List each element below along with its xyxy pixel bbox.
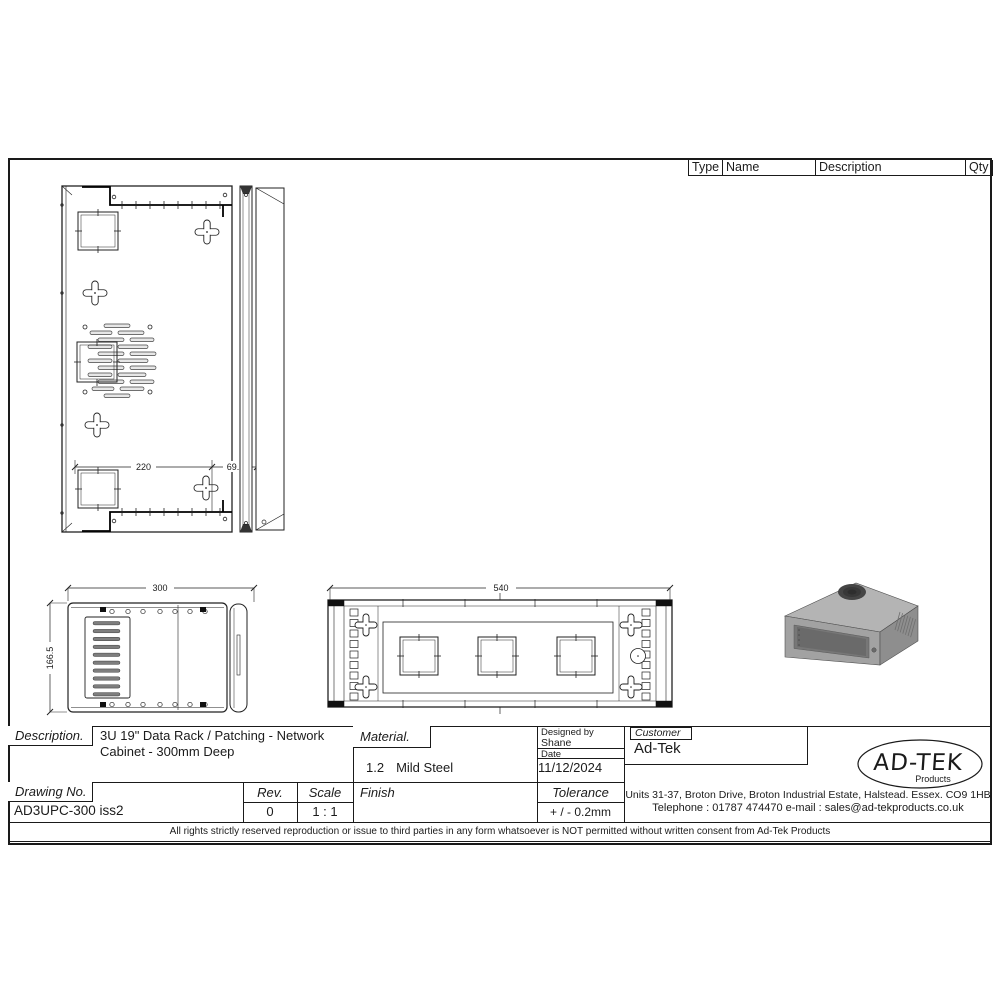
side-door-profile [230,604,247,712]
view-top-flat-pattern: 220 69.5 [52,180,292,540]
iso-fan-vent [838,584,866,600]
tolerance-value: + / - 0.2mm [537,805,624,819]
drawing-no-value: AD3UPC-300 iss2 [14,803,124,818]
finish-label: Finish [360,785,395,800]
company-address: Units 31-37, Broton Drive, Broton Indust… [624,789,992,815]
square-cutout-top [75,209,121,253]
scale-value: 1 : 1 [297,804,353,819]
drawing-no-label: Drawing No. [8,782,93,802]
dim-label-540: 540 [493,583,508,593]
view-side: 300 166.5 [38,578,268,728]
view-front: 540 [325,580,675,720]
description-line2: Cabinet - 300mm Deep [100,744,355,760]
adtek-logo-tagline: Products [915,774,951,784]
round-knockout [631,649,646,664]
rev-value: 0 [243,804,297,819]
address-line1: Units 31-37, Broton Drive, Broton Indust… [624,789,992,802]
scale-label: Scale [297,785,353,800]
material-value: 1.2Mild Steel [366,760,453,775]
parts-col-type: Type [689,160,723,175]
date-label: Date [541,749,561,760]
copyright-strip: All rights strictly reserved reproductio… [8,822,992,842]
customer-label: Customer [630,727,692,740]
view-isometric [778,578,938,668]
rev-label: Rev. [243,785,297,800]
square-cutout-bottom [75,467,121,511]
drawing-sheet: Type Name Description Qty [0,0,1000,1000]
description-line1: 3U 19" Data Rack / Patching - Network [100,728,355,744]
customer-value: Ad-Tek [634,740,681,757]
square-cutout-3 [554,634,598,678]
parts-table-header: Type Name Description Qty [688,160,993,176]
dim-label-300: 300 [152,583,167,593]
square-cutout-1 [397,634,441,678]
parts-col-description: Description [816,160,966,175]
tolerance-label: Tolerance [537,785,624,800]
material-label: Material. [353,726,431,748]
description-label: Description. [8,726,93,746]
adtek-logo-text: AD-TEK [873,750,964,776]
adtek-logo: AD-TEK Products [855,737,985,791]
side-vent-panel [85,617,130,698]
door-profile-strips [240,186,284,532]
material-name: Mild Steel [396,760,453,775]
dim-label-220: 220 [136,462,151,472]
parts-col-qty: Qty [966,160,993,175]
titleblock-top-line [8,726,992,727]
date-value: 11/12/2024 [538,760,602,775]
parts-col-name: Name [723,160,816,175]
titleblock-mid-line [8,782,625,783]
iso-lock-button [872,648,876,652]
address-line2: Telephone : 01787 474470 e-mail : sales@… [624,802,992,815]
divider [243,802,353,803]
dimension-300: 300 [65,583,257,602]
dim-label-166_5: 166.5 [45,647,55,670]
divider [537,802,624,803]
designed-by-value: Shane [541,737,571,749]
dimension-166_5: 166.5 [44,600,67,715]
material-thickness: 1.2 [366,760,384,775]
square-cutout-2 [475,634,519,678]
description-value: 3U 19" Data Rack / Patching - Network Ca… [100,728,355,759]
